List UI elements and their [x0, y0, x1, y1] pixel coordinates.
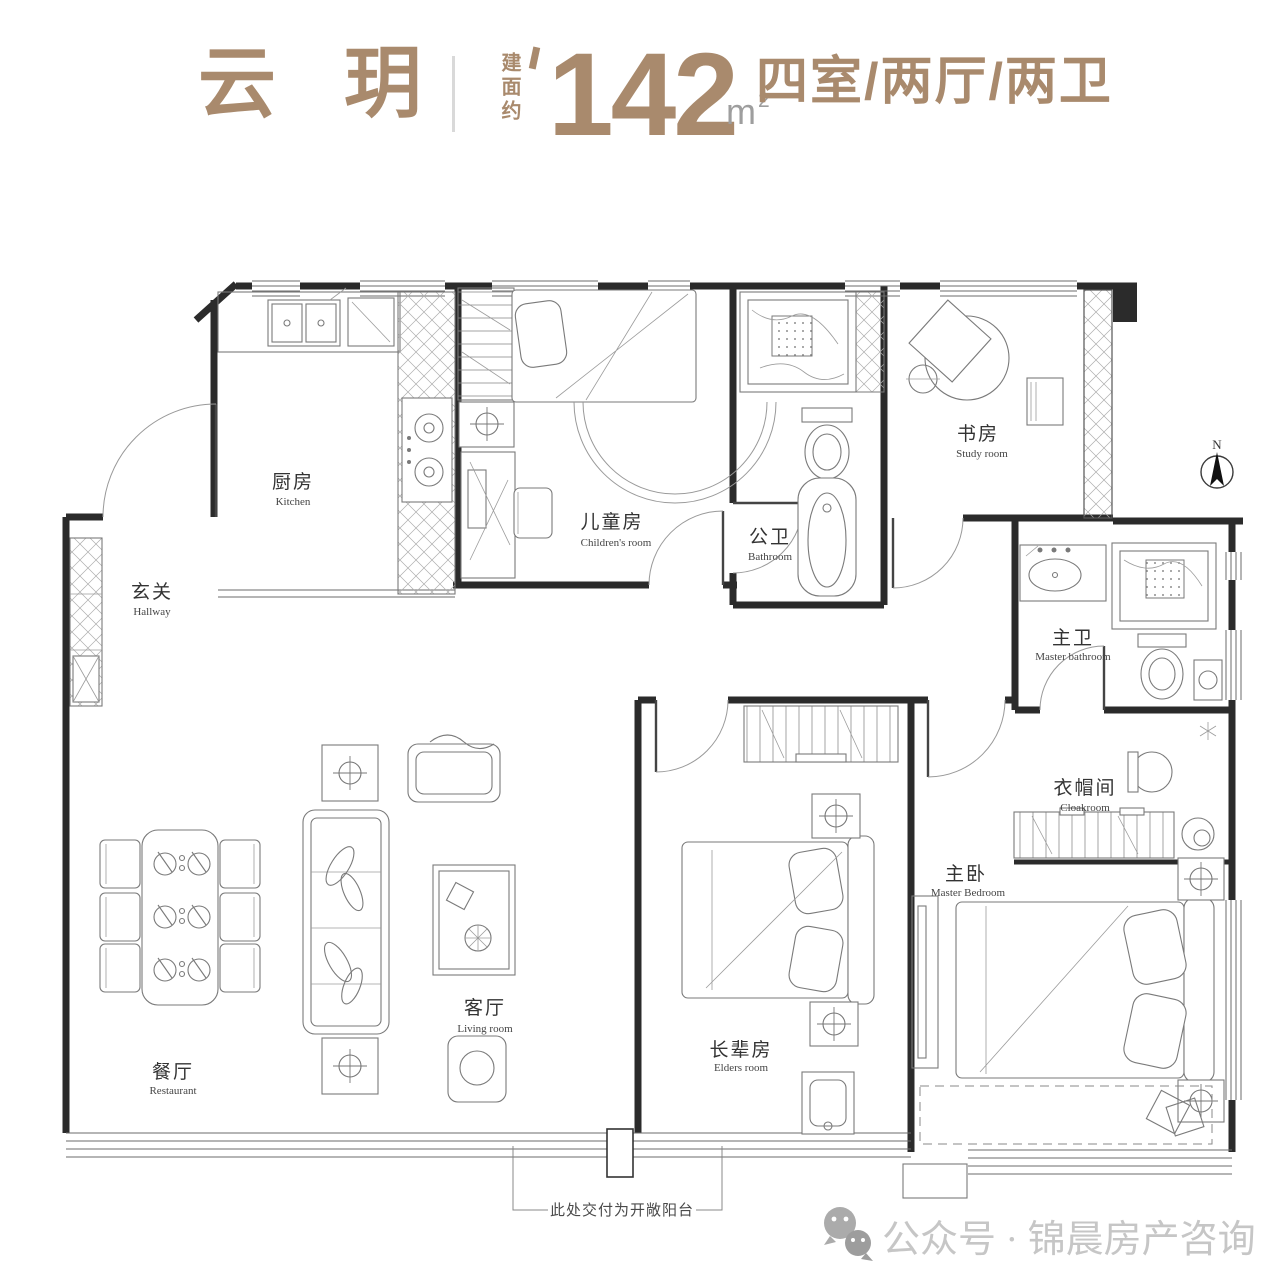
room-label-master-bedroom-en: Master Bedroom [931, 887, 1006, 899]
hallway-furniture [70, 538, 102, 706]
room-label-master-bedroom-zh: 主卧 [945, 863, 987, 885]
room-label-kitchen-zh: 厨房 [272, 471, 314, 493]
room-label-children-zh: 儿童房 [580, 511, 643, 533]
watermark: 公众号 · 锦晨房产咨询 [824, 1207, 1256, 1261]
structural-shaft [1084, 290, 1112, 518]
room-label-kitchen-en: Kitchen [276, 496, 311, 508]
living-room-furniture [303, 735, 515, 1102]
room-label-elders-en: Elders room [714, 1062, 769, 1074]
room-label-master-bath-zh: 主卫 [1052, 627, 1094, 649]
ac-platform [903, 1164, 967, 1198]
childrens-room-furniture [458, 288, 776, 578]
room-label-dining-en: Restaurant [149, 1085, 196, 1097]
master-bathroom-furniture [1020, 543, 1222, 700]
room-label-elders-zh: 长辈房 [709, 1039, 772, 1061]
room-label-hallway-en: Hallway [133, 606, 171, 618]
balcony-note-text: 此处交付为开敞阳台 [550, 1201, 694, 1219]
room-label-children-en: Children's room [581, 537, 652, 549]
compass-north-label: N [1212, 437, 1222, 452]
room-label-cloakroom-en: Cloakroom [1060, 802, 1110, 814]
room-label-cloakroom-zh: 衣帽间 [1053, 777, 1116, 799]
watermark-account-text: 公众号 · 锦晨房产咨询 [882, 1219, 1256, 1261]
room-label-dining-zh: 餐厅 [152, 1061, 194, 1083]
room-label-study-en: Study room [956, 448, 1008, 460]
study-furniture [906, 300, 1063, 425]
dining-room-furniture [100, 830, 260, 1005]
room-label-study-zh: 书房 [957, 423, 999, 445]
wechat-icon [824, 1207, 873, 1261]
room-label-hallway-zh: 玄关 [131, 581, 173, 603]
kitchen-furniture [218, 288, 455, 594]
master-bedroom-furniture [912, 858, 1224, 1144]
balcony-pillar [607, 1129, 633, 1177]
floor-plan-drawing: 厨房 Kitchen 玄关 Hallway 儿童房 Children's roo… [0, 0, 1280, 1280]
floorplan-page: 云玥 建面约 142 m2 四室/两厅/两卫 [0, 0, 1280, 1280]
room-label-bathroom-zh: 公卫 [749, 527, 791, 548]
compass: N [1201, 437, 1233, 488]
room-label-bathroom-en: Bathroom [748, 551, 792, 563]
room-label-living-en: Living room [457, 1023, 513, 1035]
room-label-living-zh: 客厅 [464, 997, 506, 1019]
room-label-master-bath-en: Master bathroom [1035, 651, 1111, 663]
